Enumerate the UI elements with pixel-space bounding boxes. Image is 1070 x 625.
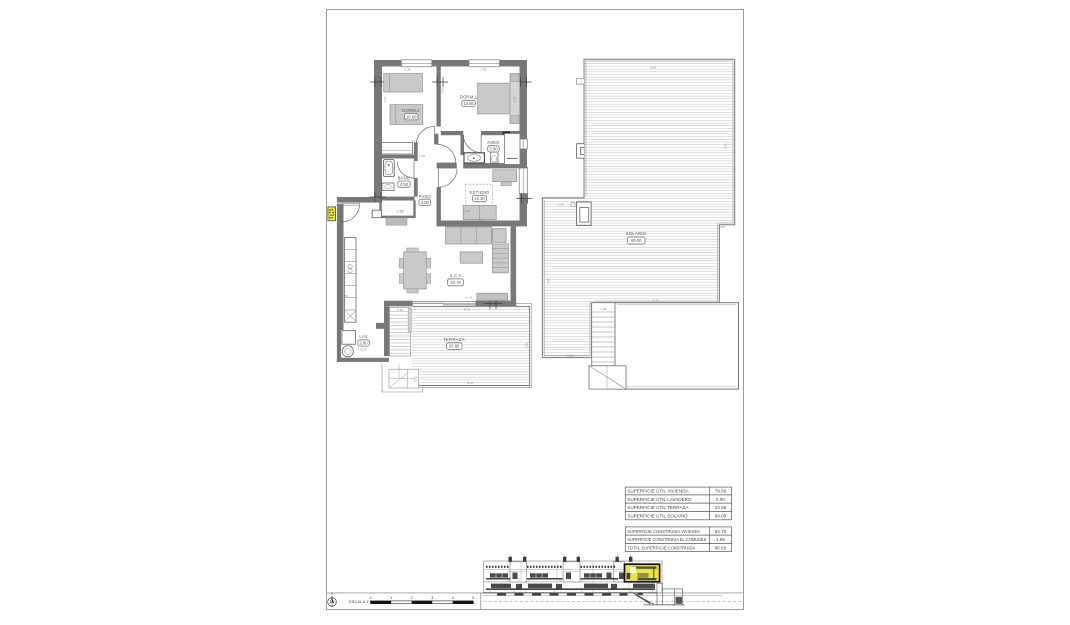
svg-text:0.96: 0.96	[601, 307, 607, 311]
svg-text:3.50: 3.50	[421, 200, 430, 205]
svg-text:5: 5	[472, 596, 474, 600]
svg-text:1.85: 1.85	[716, 537, 725, 542]
svg-text:10.10: 10.10	[474, 196, 485, 201]
svg-text:3.90: 3.90	[489, 147, 498, 152]
svg-text:2.45: 2.45	[404, 68, 410, 72]
svg-text:23.55: 23.55	[715, 505, 727, 510]
svg-text:ASEO: ASEO	[487, 140, 500, 145]
svg-text:1: 1	[390, 596, 392, 600]
svg-text:2: 2	[411, 596, 413, 600]
svg-text:7.50: 7.50	[546, 278, 550, 284]
svg-text:SUPERFICIE CONSTRUIDA VIVIENDA: SUPERFICIE CONSTRUIDA VIVIENDA	[627, 529, 701, 534]
svg-text:1.40: 1.40	[557, 202, 563, 206]
svg-text:5.50: 5.50	[724, 143, 728, 149]
svg-text:1.00: 1.00	[419, 154, 425, 158]
svg-text:2.90: 2.90	[359, 341, 368, 346]
svg-text:33.75: 33.75	[450, 280, 461, 285]
svg-text:79.80: 79.80	[715, 489, 727, 494]
svg-text:TOTAL SUPERFICIE CONSTRUIDA: TOTAL SUPERFICIE CONSTRUIDA	[627, 545, 696, 550]
svg-text:2.90: 2.90	[716, 497, 725, 502]
svg-text:SUPERFICIE ÚTIL TERRAZA: SUPERFICIE ÚTIL TERRAZA	[627, 504, 689, 510]
svg-text:SUPERFICIE CONSTRUIDA EL.COMUN: SUPERFICIE CONSTRUIDA EL.COMUNES	[627, 537, 706, 542]
svg-text:6.70: 6.70	[467, 381, 473, 385]
svg-text:3.90: 3.90	[513, 96, 517, 102]
svg-text:DORM.2: DORM.2	[402, 108, 420, 113]
svg-text:4.00: 4.00	[383, 96, 387, 102]
svg-text:0.80: 0.80	[719, 225, 725, 229]
svg-text:1.66: 1.66	[342, 294, 348, 298]
svg-text:4: 4	[452, 596, 454, 600]
svg-text:SUPERFICIE ÚTIL SOLARIO: SUPERFICIE ÚTIL SOLARIO	[627, 512, 688, 518]
svg-text:PASO: PASO	[419, 194, 432, 199]
svg-text:4.00: 4.00	[339, 265, 343, 271]
svg-text:3: 3	[431, 596, 433, 600]
svg-text:5.70: 5.70	[464, 308, 470, 312]
svg-text:89.00: 89.00	[715, 513, 727, 518]
svg-text:1.90: 1.90	[464, 209, 470, 213]
svg-text:2.55: 2.55	[567, 354, 573, 358]
svg-text:LAV.: LAV.	[359, 334, 368, 339]
svg-text:96.55: 96.55	[715, 545, 727, 550]
svg-text:3.50: 3.50	[525, 342, 529, 348]
svg-text:13.65: 13.65	[463, 101, 474, 106]
svg-text:TERRAZA: TERRAZA	[443, 337, 465, 342]
svg-text:6.10: 6.10	[466, 296, 472, 300]
svg-text:DORM.1: DORM.1	[460, 95, 478, 100]
svg-text:94.70: 94.70	[715, 529, 727, 534]
svg-text:1.55: 1.55	[397, 209, 404, 213]
svg-text:89.00: 89.00	[631, 238, 642, 243]
svg-text:10.60: 10.60	[406, 114, 417, 119]
svg-text:2.66: 2.66	[477, 219, 483, 223]
svg-text:BAÑO: BAÑO	[398, 176, 411, 181]
svg-text:6.90: 6.90	[650, 65, 656, 69]
svg-text:4.70: 4.70	[441, 88, 445, 94]
svg-text:ESTUDIO: ESTUDIO	[469, 190, 490, 195]
svg-text:2.10: 2.10	[360, 347, 366, 351]
svg-text:SUPERFICIE ÚTIL LAVADERO: SUPERFICIE ÚTIL LAVADERO	[627, 496, 692, 502]
svg-text:6.10: 6.10	[652, 299, 658, 303]
svg-text:ESCALA 1:: ESCALA 1:	[349, 600, 370, 604]
svg-text:0.96: 0.96	[397, 308, 403, 312]
svg-text:0: 0	[370, 596, 372, 600]
svg-text:SUPERFICIE ÚTIL VIVIENDA: SUPERFICIE ÚTIL VIVIENDA	[627, 488, 689, 494]
svg-text:26.88: 26.88	[449, 344, 460, 349]
svg-text:S.C.C.: S.C.C.	[450, 273, 464, 278]
svg-text:SOLARIO: SOLARIO	[626, 231, 647, 236]
svg-text:N: N	[331, 592, 333, 596]
svg-text:2.85: 2.85	[480, 68, 486, 72]
svg-text:4.50: 4.50	[400, 182, 409, 187]
